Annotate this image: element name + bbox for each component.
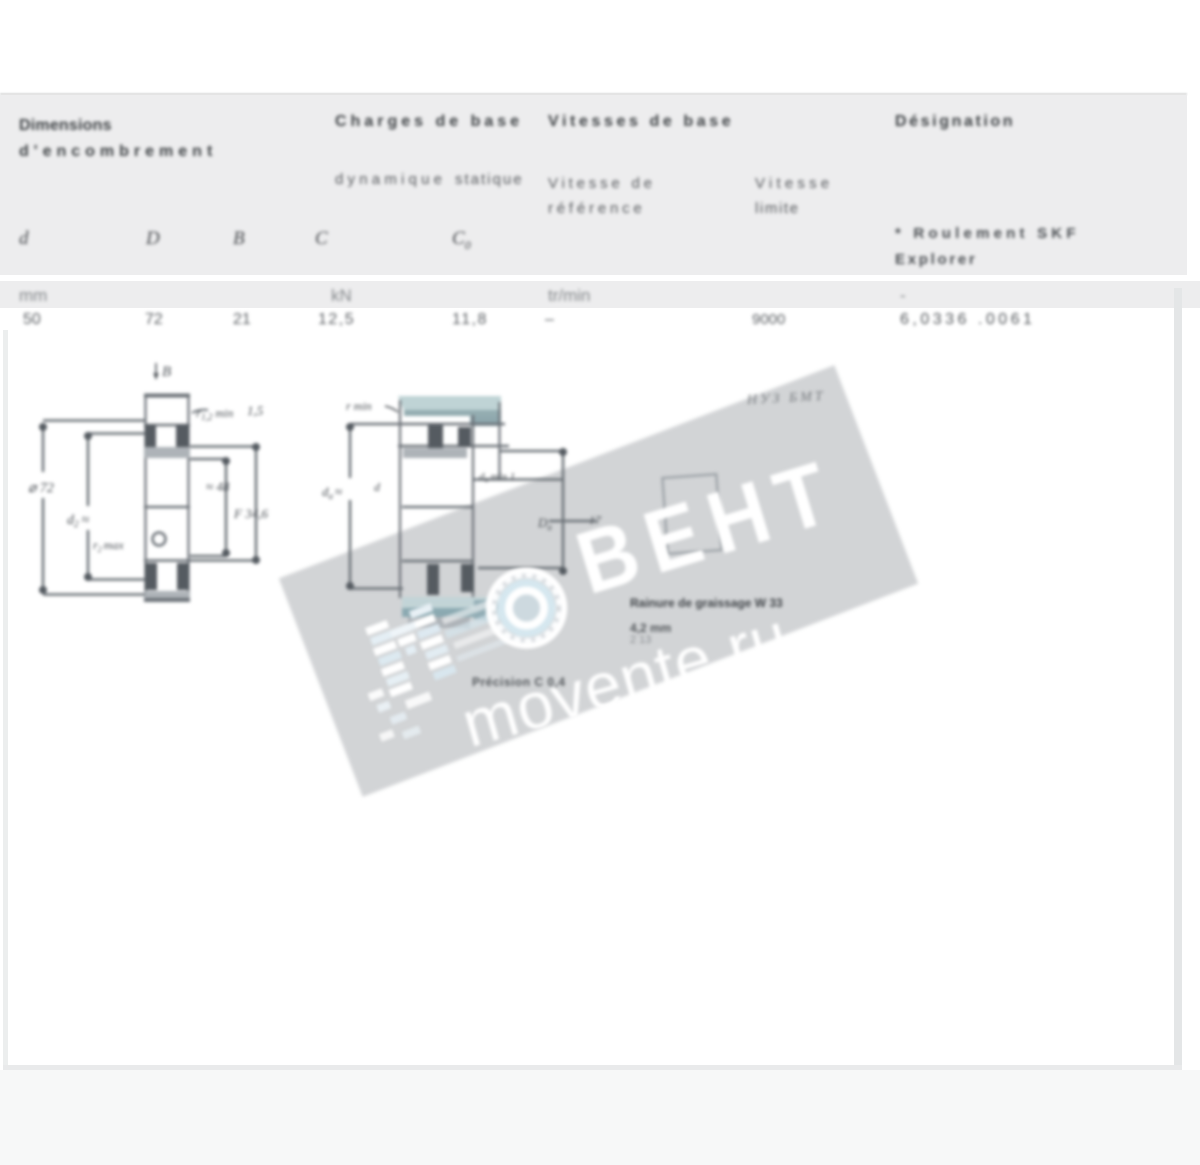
svg-text:B: B — [162, 364, 171, 380]
svg-text:1,5: 1,5 — [247, 403, 264, 418]
svg-text:da≈: da≈ — [322, 484, 342, 501]
svg-text:r1,2min: r1,2min — [196, 405, 233, 422]
svg-text:d2≈: d2≈ — [67, 513, 90, 529]
svg-text:F 34,6: F 34,6 — [233, 506, 268, 521]
svg-text:damin 1: damin 1 — [479, 471, 515, 484]
svg-text:≈ 48: ≈ 48 — [206, 479, 230, 494]
svg-text:Da: Da — [537, 515, 552, 532]
svg-text:r2max: r2max — [93, 538, 124, 554]
svg-text:r min: r min — [346, 399, 372, 413]
svg-text:d: d — [374, 480, 381, 494]
svg-text:⌀ 72: ⌀ 72 — [28, 481, 54, 496]
